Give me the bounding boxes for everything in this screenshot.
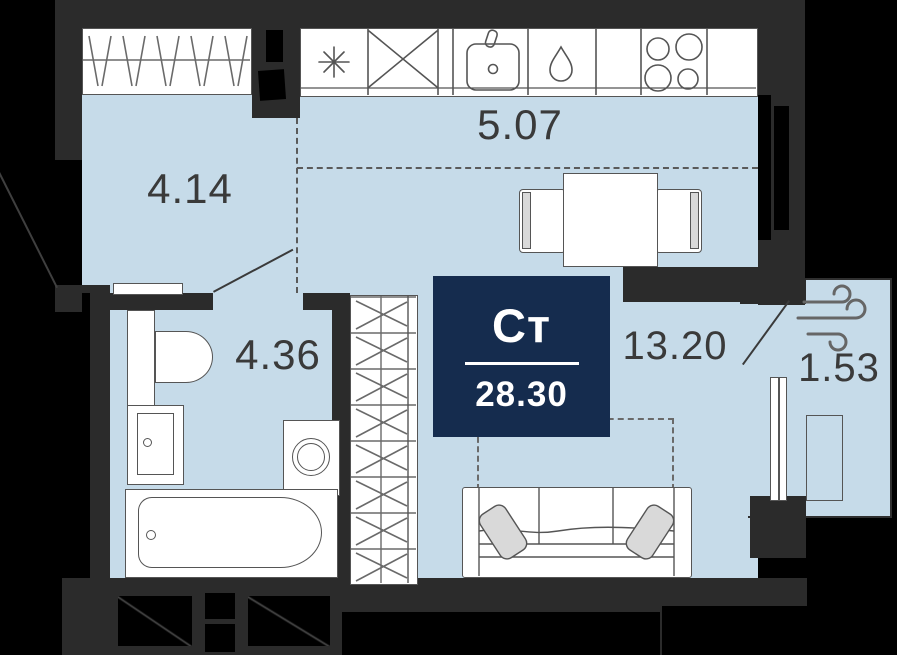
- wind-icon: [790, 278, 882, 354]
- kitchen-fixtures-icons: [301, 29, 756, 95]
- sink-icon: [467, 29, 519, 90]
- wall-left-upper: [55, 0, 82, 160]
- total-area-value: 28.30: [475, 375, 568, 415]
- sink-drain: [143, 438, 152, 447]
- water-drop-icon: [550, 47, 572, 81]
- wall-bottom-right: [662, 578, 807, 606]
- sofa-pillow: [476, 502, 676, 562]
- bathroom-sink: [127, 405, 184, 485]
- neighbor-silhouette: [205, 624, 235, 652]
- kitchen-area-label: 5.07: [450, 104, 590, 146]
- bathtub: [125, 489, 338, 578]
- living-area-label: 13.20: [605, 326, 745, 366]
- chair-backrest: [522, 192, 531, 249]
- dining-chair-right: [655, 189, 702, 253]
- window-bar: [774, 106, 789, 230]
- bathtub-basin: [138, 497, 322, 568]
- plan-type-label: Ст: [492, 298, 551, 353]
- window-bar: [758, 95, 771, 240]
- bathtub-drain: [146, 530, 156, 540]
- sofa: [462, 487, 692, 578]
- kitchen-counter: [300, 28, 758, 97]
- vent-shaft: [258, 69, 286, 101]
- chair-backrest: [690, 192, 699, 249]
- hob-burners-icon: [645, 34, 702, 91]
- hallway-area-label: 4.14: [120, 168, 260, 210]
- wall-bath-left: [90, 293, 110, 623]
- neighbor-silhouette: [248, 596, 330, 646]
- entry-door-swing: [0, 172, 58, 288]
- wall-below-balcony: [750, 496, 806, 558]
- toilet-cistern-shaft: [127, 310, 155, 407]
- zone-divider-horizontal: [297, 167, 758, 169]
- glazing-line: [778, 378, 780, 500]
- zone-divider-vertical: [296, 118, 298, 293]
- neighbor-silhouette: [118, 596, 192, 646]
- neighbor-silhouette: [205, 593, 235, 619]
- wardrobe-hatch-icon: [351, 296, 416, 583]
- dining-chair-left: [519, 189, 566, 253]
- wall-top: [55, 0, 805, 28]
- sofa-detail: [463, 488, 690, 576]
- washing-machine: [283, 420, 340, 496]
- vent-shaft: [266, 30, 283, 62]
- hall-shelf: [113, 283, 183, 295]
- neighbor-silhouette: [342, 612, 660, 655]
- snowflake-icon: [319, 47, 349, 77]
- dining-table: [563, 173, 658, 267]
- wardrobe-hatch-icon: [83, 29, 250, 93]
- washer-drum-inner: [297, 443, 325, 471]
- toilet: [155, 331, 213, 383]
- plan-type-badge: Ст 28.30: [433, 276, 610, 437]
- cross-box-icon: [369, 31, 437, 87]
- balcony-area-label: 1.53: [789, 348, 889, 388]
- badge-divider: [465, 362, 579, 365]
- floor-plan: 4.14 5.07 4.36 13.20 1.53 Ст 28.30: [0, 0, 897, 655]
- outside-patch-left: [82, 293, 90, 578]
- hall-wardrobe: [82, 28, 252, 95]
- living-wardrobe: [350, 295, 418, 585]
- balcony-glazing: [770, 377, 787, 501]
- balcony-cabinet: [806, 415, 843, 501]
- bathroom-area-label: 4.36: [208, 334, 348, 376]
